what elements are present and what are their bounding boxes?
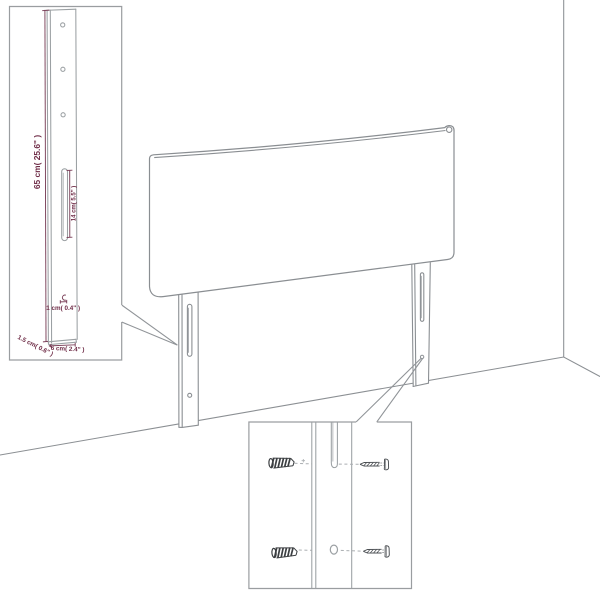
svg-text:65 cm( 25.6" ): 65 cm( 25.6" ) — [32, 135, 42, 189]
svg-text:14 cm( 5.5" ): 14 cm( 5.5" ) — [72, 186, 78, 222]
svg-text:1 cm( 0.4" ): 1 cm( 0.4" ) — [46, 305, 80, 312]
